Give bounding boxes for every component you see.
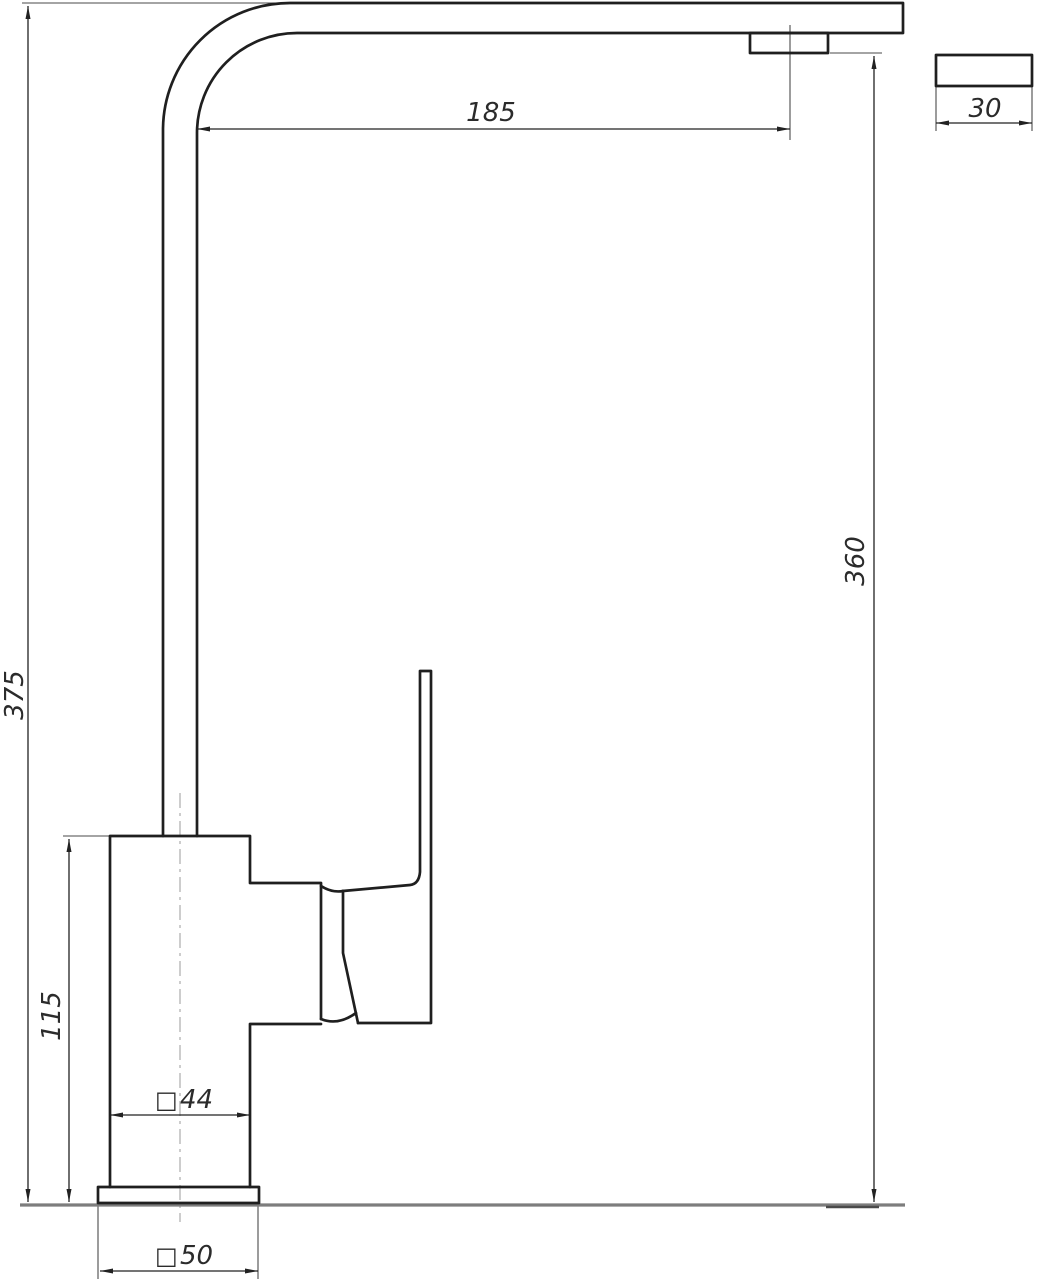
square-symbol-base: □ — [155, 1242, 178, 1270]
dim-label-overall-height: 375 — [0, 670, 30, 720]
dimension-lines-group — [28, 6, 1032, 1271]
dim-label-spout-reach: 185 — [466, 98, 516, 128]
cartridge-right-edge — [343, 891, 358, 1023]
dim-label-base-width: 50 — [180, 1241, 213, 1271]
base-plate — [98, 1187, 259, 1203]
lever-handle-outline — [343, 671, 431, 1023]
cartridge-bottom-arc — [321, 1013, 356, 1021]
dim-label-body-width: 44 — [180, 1085, 213, 1115]
dim-label-spout-outlet-height: 360 — [841, 536, 871, 586]
faucet-outline-group — [98, 3, 1032, 1203]
body-lower-outline — [250, 1024, 321, 1187]
dimension-labels-group: 185 30 360 375 115 □ 44 □ 50 — [0, 94, 1002, 1271]
dim-label-spout-depth: 30 — [968, 94, 1001, 124]
body-upper-outline — [110, 836, 321, 1187]
cartridge-top-curve — [321, 886, 343, 891]
spout-and-riser-outline — [163, 3, 903, 836]
dim-label-body-height: 115 — [37, 991, 67, 1041]
spout-section-detail — [936, 55, 1032, 86]
spout-outlet — [750, 33, 828, 53]
drawing-sheet: 185 30 360 375 115 □ 44 □ 50 — [0, 0, 1037, 1280]
ground-group — [20, 1205, 905, 1207]
square-symbol-body: □ — [155, 1086, 178, 1114]
technical-drawing-canvas: 185 30 360 375 115 □ 44 □ 50 — [0, 0, 1037, 1280]
